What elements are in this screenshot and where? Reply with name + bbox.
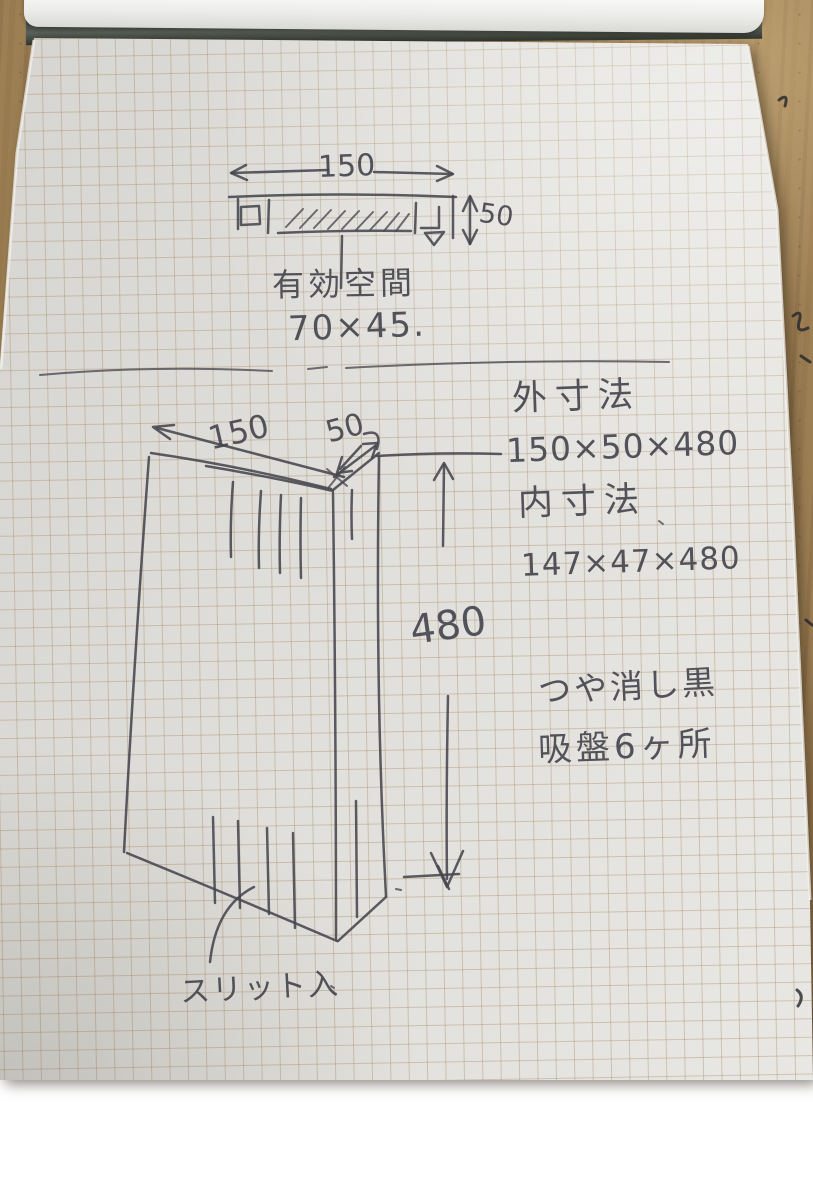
matte-black-note: つや消し黒 (537, 665, 718, 707)
top-view-height-label: 50 (477, 200, 515, 232)
effective-space-size: 70×45. (287, 308, 426, 347)
slit-note-label: スリット入 (179, 970, 340, 1008)
side-view-height-label: 480 (408, 601, 489, 651)
outer-dims-label: 外寸法 (511, 378, 641, 417)
grid-lines (0, 0, 813, 1188)
suction-cups-note: 吸盤6ヶ所 (537, 727, 716, 767)
inner-dims-label: 内寸法 (517, 483, 647, 522)
effective-space-title: 有効空間 (272, 267, 417, 302)
top-view-width-label: 150 (317, 151, 375, 183)
outer-dims-value: 150×50×480 (505, 426, 739, 467)
inner-dims-value: 147×47×480 (521, 543, 742, 582)
paper-wrap (0, 0, 813, 1080)
grid-paper-sheet (0, 0, 813, 1080)
